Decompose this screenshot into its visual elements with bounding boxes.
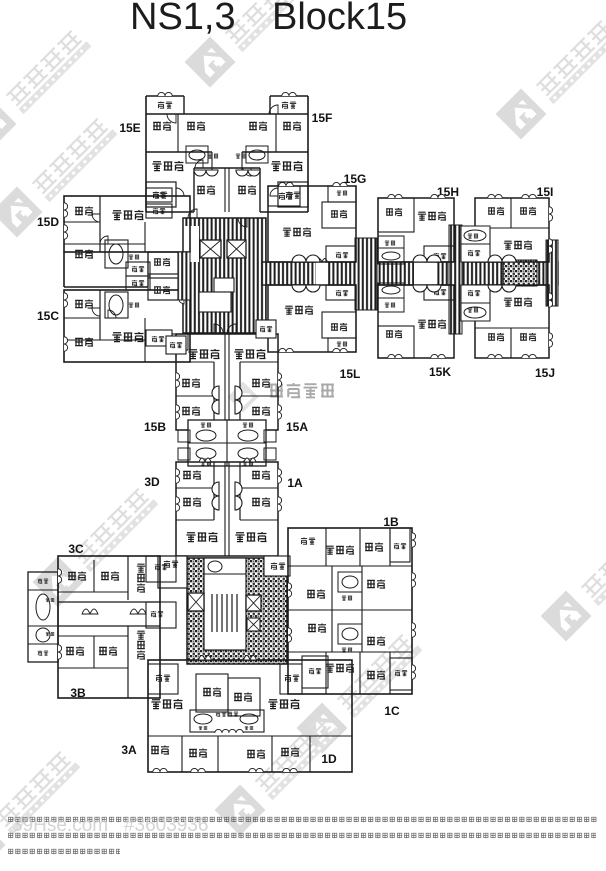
svg-text:1B: 1B <box>383 515 399 529</box>
svg-text:15I: 15I <box>537 185 554 199</box>
svg-text:3C: 3C <box>68 542 84 556</box>
svg-text:15E: 15E <box>119 121 140 135</box>
svg-text:3D: 3D <box>144 475 160 489</box>
svg-text:15D: 15D <box>37 215 59 229</box>
svg-text:Block15: Block15 <box>272 0 407 38</box>
svg-text:1A: 1A <box>287 476 303 490</box>
svg-text:3A: 3A <box>121 743 137 757</box>
svg-text:NS1,3: NS1,3 <box>130 0 236 38</box>
svg-text:15B: 15B <box>144 420 166 434</box>
svg-text:15A: 15A <box>286 420 308 434</box>
svg-text:1D: 1D <box>321 752 337 766</box>
svg-text:15J: 15J <box>535 366 555 380</box>
svg-text:15L: 15L <box>340 367 361 381</box>
svg-text:15F: 15F <box>312 111 333 125</box>
svg-text:15K: 15K <box>429 365 451 379</box>
svg-text:39Hse.com #3603936: 39Hse.com #3603936 <box>12 815 208 836</box>
svg-text:15C: 15C <box>37 309 59 323</box>
svg-text:1C: 1C <box>384 704 400 718</box>
svg-text:3B: 3B <box>70 686 86 700</box>
